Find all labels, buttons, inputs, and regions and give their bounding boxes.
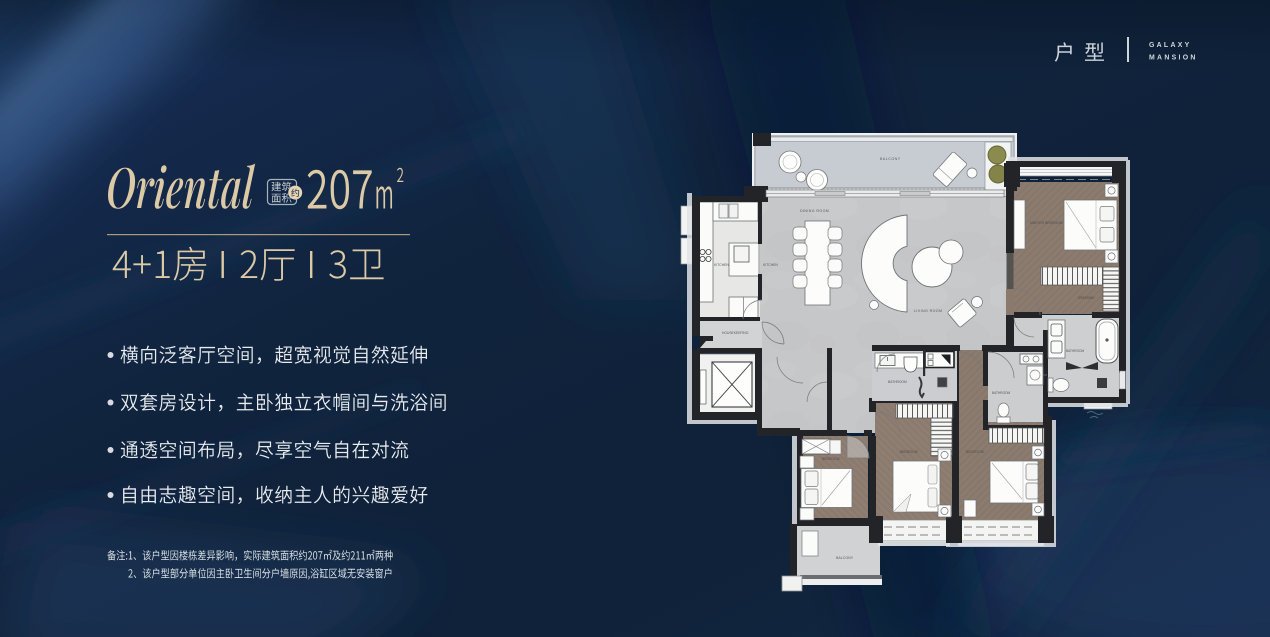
svg-text:BATHROOM: BATHROOM xyxy=(992,391,1011,395)
svg-text:DRESSING: DRESSING xyxy=(1078,296,1095,300)
svg-text:BATHROOM: BATHROOM xyxy=(1066,349,1085,353)
svg-text:LIVING ROOM: LIVING ROOM xyxy=(914,309,942,313)
svg-text:BEDROOM: BEDROOM xyxy=(966,450,984,454)
svg-text:DINING ROOM: DINING ROOM xyxy=(800,209,829,213)
svg-text:GALAXY: GALAXY xyxy=(1149,42,1192,49)
svg-text:BALCONY: BALCONY xyxy=(836,556,854,560)
svg-text:BALCONY: BALCONY xyxy=(880,157,901,161)
svg-text:MASTER BEDROOM: MASTER BEDROOM xyxy=(1030,221,1063,225)
svg-text:MANSION: MANSION xyxy=(1149,55,1198,62)
svg-text:KITCHEN: KITCHEN xyxy=(763,263,778,267)
svg-text:BEDROOM: BEDROOM xyxy=(900,450,918,454)
svg-text:KITCHEN: KITCHEN xyxy=(714,263,729,267)
svg-text:BEDROOM: BEDROOM xyxy=(822,457,840,461)
svg-text:HOUSEKEEPING: HOUSEKEEPING xyxy=(722,331,749,335)
svg-text:BATHROOM: BATHROOM xyxy=(888,380,907,384)
